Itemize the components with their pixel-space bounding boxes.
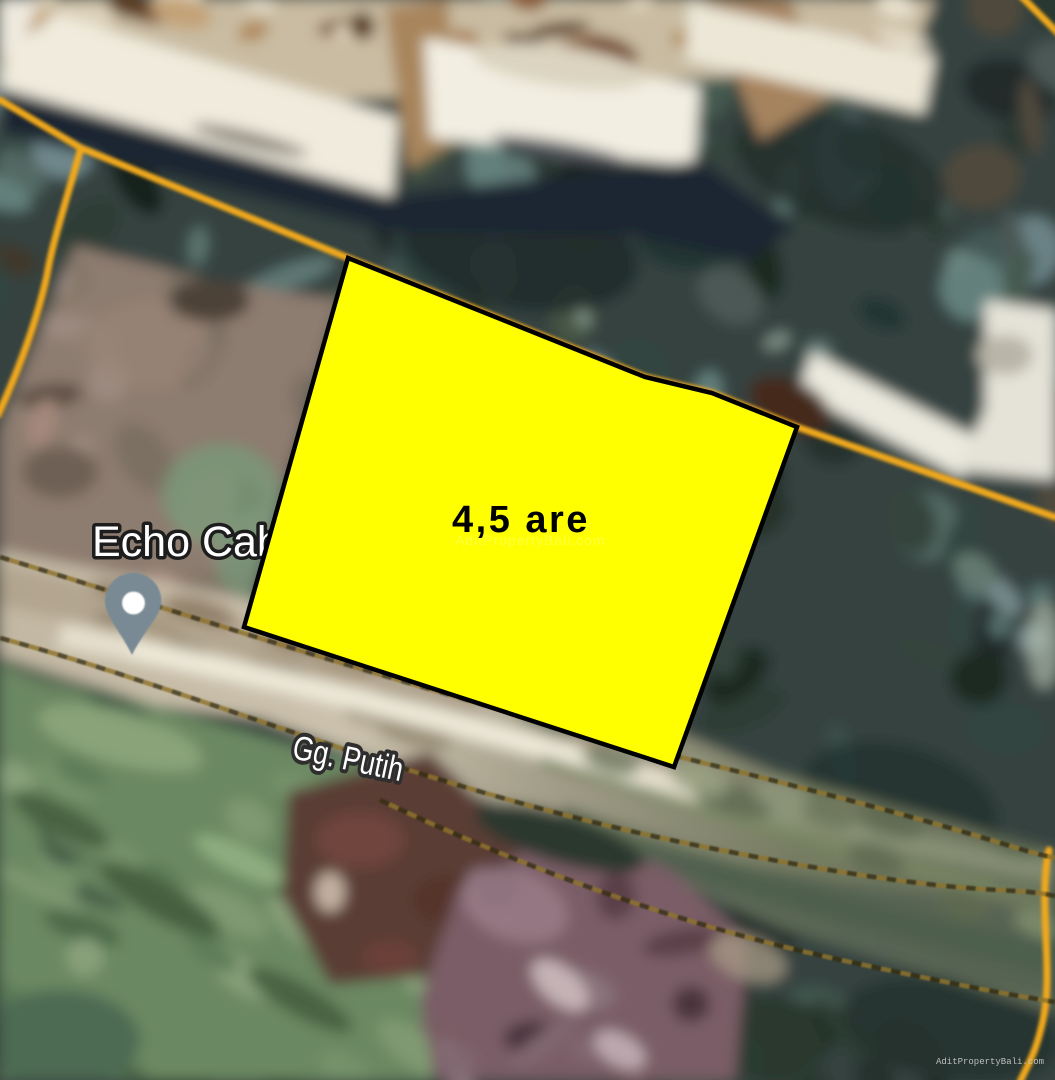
svg-text:4,5 are: 4,5 are [452, 499, 590, 541]
svg-text:Echo Cab: Echo Cab [92, 518, 281, 566]
svg-text:AditPropertyBali.com: AditPropertyBali.com [936, 1057, 1044, 1067]
